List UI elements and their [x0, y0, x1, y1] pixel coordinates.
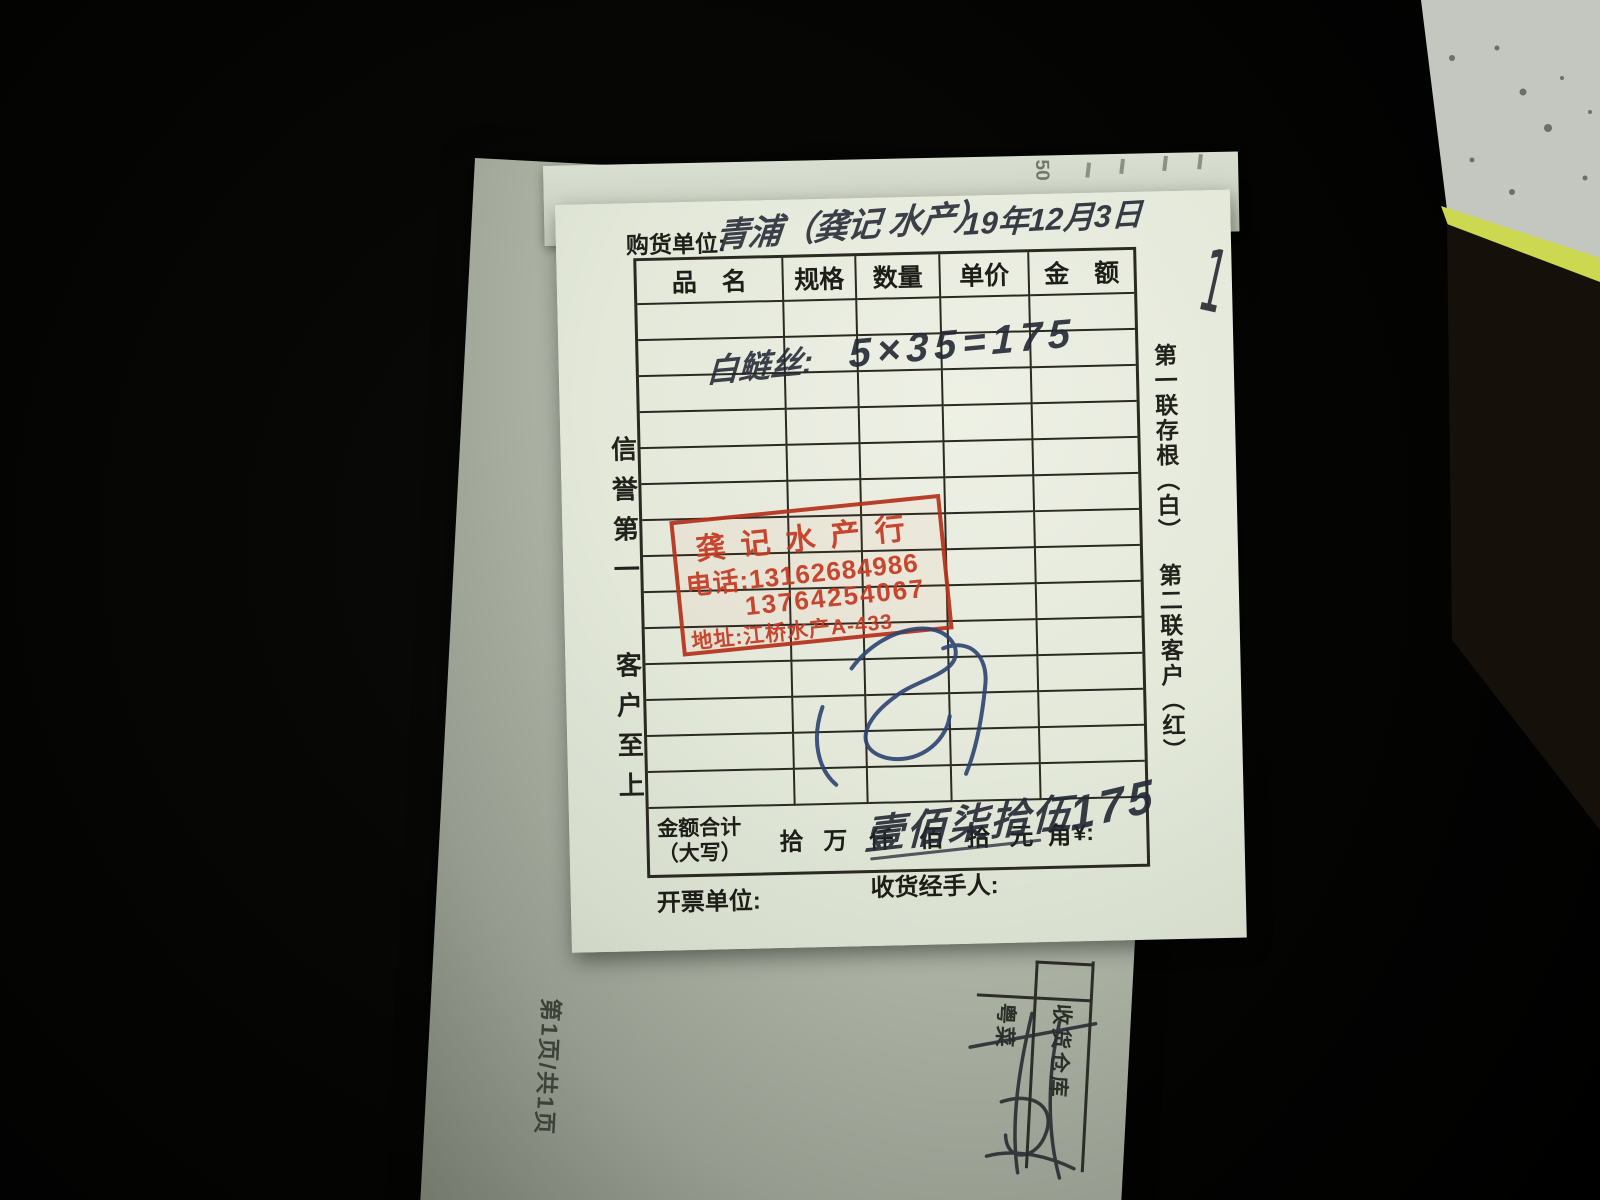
table-cell: [861, 442, 946, 480]
table-cell: [947, 548, 1037, 586]
unit-wan: 万: [823, 820, 848, 856]
table-cell: [1040, 726, 1145, 764]
column-header-qty: 数量: [856, 254, 941, 300]
table-cell: [640, 410, 788, 449]
total-label: 金额合计 （大写）: [649, 814, 770, 867]
copy-label-first: 第一联存根（白）: [1146, 343, 1185, 559]
table-cell: [637, 302, 785, 341]
buyer-unit-label: 购货单位:: [626, 224, 726, 260]
warehouse-table-fragment: 收货仓库 粤菜: [968, 953, 1111, 1175]
table-cell: [788, 444, 862, 482]
table-cell: [1034, 474, 1139, 512]
table-cell: [784, 300, 858, 338]
table-cell: [944, 440, 1034, 478]
table-cell: [1038, 618, 1143, 656]
table-cell: [1032, 366, 1137, 404]
column-header-spec: 规格: [783, 256, 857, 302]
table-cell: [787, 408, 861, 446]
margin-tally-mark: 1: [1190, 231, 1235, 334]
table-cell: [860, 406, 945, 444]
print-fragment: [1197, 154, 1203, 169]
table-cell: [859, 370, 944, 408]
photo-scene: 第1页/共1页 收货仓库 粤菜 50: [0, 0, 1600, 1200]
table-cell: [1039, 690, 1144, 728]
table-cell: [1036, 546, 1141, 584]
table-cell: [945, 476, 1035, 514]
print-fragment: [1162, 156, 1168, 171]
table-cell: [944, 404, 1034, 442]
dark-shelf: [1447, 224, 1600, 830]
copy-label-second: 第二联客户（红）: [1151, 563, 1190, 779]
table-cell: [943, 368, 1033, 406]
date-handwriting: 19年12月3日: [962, 188, 1143, 244]
table-cell: [1033, 402, 1138, 440]
receipt-paper: 购货单位: 青浦（龚记 水产） 19年12月3日 信誉第一 客户至上 第一联存根…: [555, 190, 1247, 953]
print-fragment: [1085, 162, 1091, 177]
table-cell: [1033, 438, 1138, 476]
print-fragment: [1119, 159, 1125, 174]
column-header-price: 单价: [940, 252, 1030, 298]
table-cell: [641, 446, 789, 485]
table-cell: [1037, 582, 1142, 620]
column-header-amount: 金 额: [1029, 250, 1134, 296]
table-cell: [946, 512, 1036, 550]
column-header-item: 品 名: [636, 258, 784, 305]
handler-signature-scribble: [955, 1005, 1114, 1188]
stamp-address-label: 地址:: [690, 626, 744, 654]
table-cell: [648, 770, 796, 809]
signature-scribble: [792, 603, 1001, 793]
total-label-line2: （大写）: [657, 839, 770, 867]
table-cell: [647, 734, 795, 773]
table-cell: [1035, 510, 1140, 548]
unit-shi-wan: 拾: [779, 821, 804, 857]
page-number: 第1页/共1页: [525, 997, 570, 1200]
table-cell: [1038, 654, 1143, 692]
table-line: [1036, 960, 1094, 966]
table-cell: [646, 698, 794, 737]
total-label-line1: 金额合计: [657, 814, 770, 842]
handler-label: 收货经手人:: [870, 865, 999, 903]
issuer-label: 开票单位:: [656, 881, 761, 918]
table-cell: [645, 662, 793, 701]
